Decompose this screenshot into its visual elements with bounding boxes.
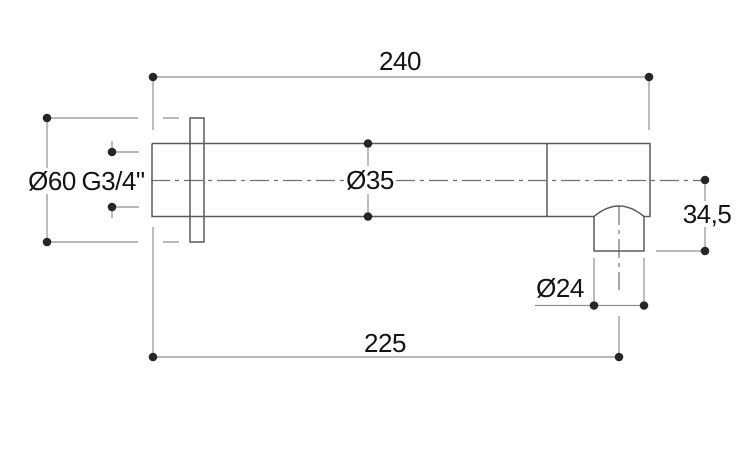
marker-dot bbox=[615, 353, 624, 362]
marker-dot bbox=[701, 247, 710, 256]
marker-dot bbox=[43, 238, 52, 247]
marker-dot bbox=[364, 139, 373, 148]
dim-outlet-height-label: 34,5 bbox=[681, 201, 734, 227]
centerlines bbox=[151, 181, 705, 291]
marker-dot bbox=[43, 114, 52, 123]
marker-dot bbox=[108, 203, 117, 212]
dim-outlet-diameter-label: Ø24 bbox=[534, 275, 586, 301]
dim-flange-diameter-label: Ø60 bbox=[26, 168, 78, 194]
marker-dot bbox=[701, 176, 710, 185]
marker-dot bbox=[364, 212, 373, 221]
marker-dot bbox=[590, 301, 599, 310]
dim-thread-size-label: G3/4" bbox=[79, 168, 146, 194]
marker-dot bbox=[108, 148, 117, 157]
dim-body-diameter-label: Ø35 bbox=[344, 167, 396, 193]
dim-wall-to-outlet-label: 225 bbox=[362, 330, 408, 356]
dim-overall-length-label: 240 bbox=[377, 48, 423, 74]
spout-body-outline bbox=[152, 118, 650, 251]
marker-dot bbox=[149, 353, 158, 362]
technical-drawing: 240 Ø60 G3/4" Ø35 34,5 Ø24 225 bbox=[0, 0, 746, 463]
marker-dot bbox=[149, 73, 158, 82]
drawing-geometry bbox=[0, 0, 746, 463]
marker-dot bbox=[645, 73, 654, 82]
dim-overall-length-lines bbox=[153, 77, 649, 130]
marker-dot bbox=[640, 301, 649, 310]
